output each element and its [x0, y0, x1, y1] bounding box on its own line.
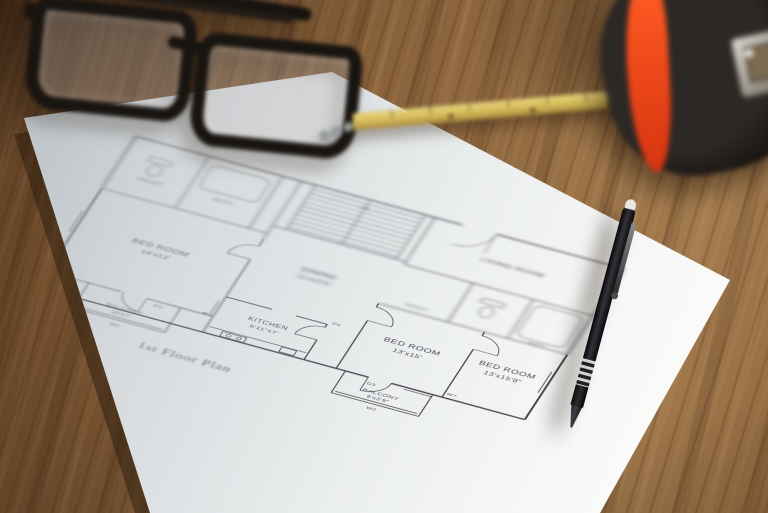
- marker-w2-1: W2: [108, 322, 120, 329]
- marker-d3-2: D3: [366, 381, 377, 387]
- bedroom-2-door-arc: [367, 307, 400, 327]
- marker-d2: D2: [331, 322, 342, 328]
- kitchen-door-arc: [295, 321, 325, 339]
- outer-wall-bottom-right: [37, 222, 567, 420]
- room-label-bath-left: BATH: [212, 198, 233, 207]
- toilet-tank: [148, 156, 173, 167]
- sink: [279, 347, 297, 356]
- ruler-rivet: [448, 114, 453, 119]
- room-label-bath-right: BATH: [527, 341, 547, 350]
- glasses-lens-left: [22, 0, 199, 124]
- toilet-fixture-2: [477, 305, 497, 319]
- glasses-lens-right: [187, 31, 364, 162]
- plan-far-labels: TOILET BATH LIVING ROOM DINING 11'x12'6"…: [103, 164, 586, 349]
- entry-door-arc: [451, 225, 496, 253]
- bedroom-3-door-arc: [473, 336, 506, 356]
- marker-w2-2: W2: [365, 406, 377, 413]
- bedroom-1-door-arc: [227, 240, 259, 259]
- plan-title: 1st Floor Plan: [135, 340, 234, 374]
- ruler-rivet: [530, 108, 535, 113]
- room-label-living: LIVING ROOM: [479, 256, 546, 279]
- desk-scene: TOILET BATH LIVING ROOM DINING 11'x12'6"…: [0, 0, 768, 513]
- tape-measure-clip-window: [743, 41, 768, 83]
- toilet-tank-2: [480, 298, 505, 308]
- toilet-fixture: [145, 164, 165, 178]
- stove-burner: [226, 334, 232, 338]
- room-label-toilet-left: TOILET: [135, 177, 163, 188]
- stove-burner: [236, 337, 242, 341]
- marker-d3-1: D3: [152, 304, 163, 310]
- marker-w7: W7: [446, 392, 458, 399]
- interior-walls-near: [203, 267, 485, 397]
